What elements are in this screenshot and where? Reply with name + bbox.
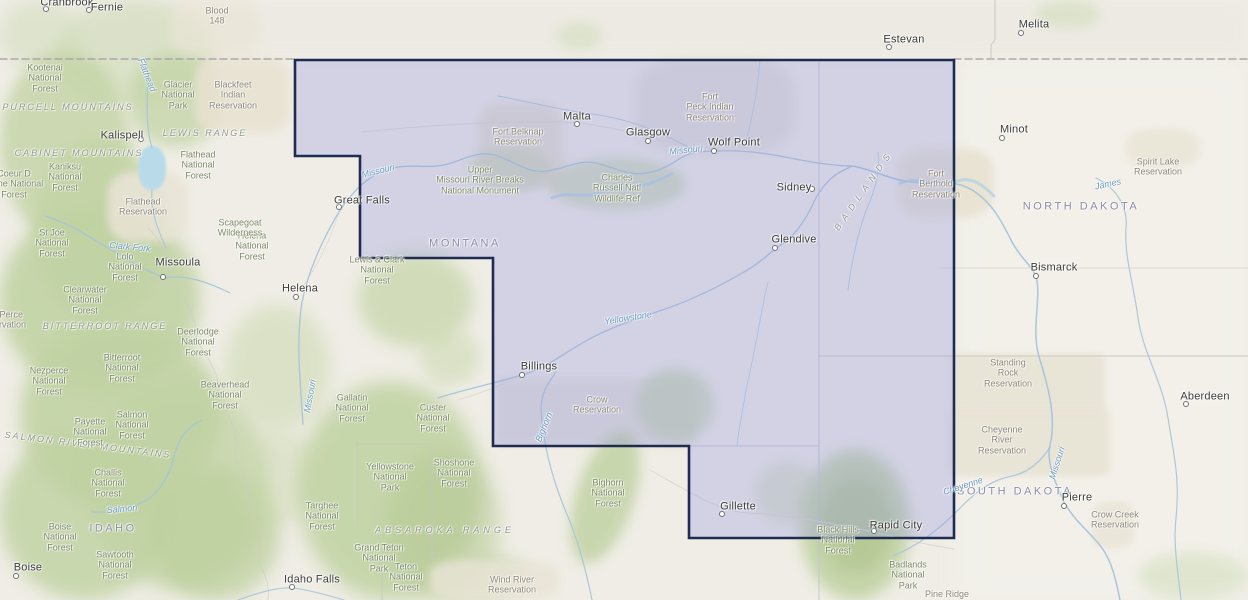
city-marker-kalispell <box>138 136 144 142</box>
range-label-lewis-range: LEWIS RANGE <box>163 128 248 138</box>
forest-label-scapegoat: Scapegoat Wilderness <box>218 218 263 239</box>
range-label-cabinet-mountains: CABINET MOUNTAINS <box>15 148 144 158</box>
forest-label-helena: Helena National Forest <box>235 230 268 261</box>
state-label-south-dakota: SOUTH DAKOTA <box>957 486 1073 499</box>
res-label-crow-creek: Crow Creek Reservation <box>1091 510 1139 531</box>
forest-label-grand-teton: Grand Teton National Park <box>354 542 403 573</box>
city-marker-gillette <box>719 511 725 517</box>
city-marker-glendive <box>772 245 778 251</box>
river-label-flathead: Flathead <box>136 57 159 93</box>
city-label-billings: Billings <box>521 361 557 374</box>
forest-label-st-joe: St Joe National Forest <box>35 227 68 258</box>
river-label-yellowstone: Yellowstone <box>603 309 652 327</box>
res-label-fort: Fort Berthold Reservation <box>912 168 960 199</box>
res-label-crow: Crow Reservation <box>573 395 621 416</box>
city-marker-cranbrook <box>43 6 49 12</box>
forest-label-flathead: Flathead National Forest <box>180 149 215 180</box>
res-label-blood: Blood 148 <box>205 6 228 27</box>
city-label-estevan: Estevan <box>883 34 924 47</box>
res-label-pine-ridge: Pine Ridge <box>925 589 969 599</box>
city-label-kalispell: Kalispell <box>101 130 144 143</box>
city-marker-helena <box>293 294 299 300</box>
city-marker-boise <box>13 573 19 579</box>
river-label-missouri: Missouri <box>669 143 703 157</box>
city-marker-great-falls <box>336 204 342 210</box>
forest-label-beaverhead: Beaverhead National Forest <box>201 379 250 410</box>
res-label-standing: Standing Rock Reservation <box>984 357 1032 388</box>
city-marker-malta <box>574 121 580 127</box>
city-label-gillette: Gillette <box>720 501 756 514</box>
city-marker-minot <box>999 135 1005 141</box>
forest-label-yellowstone: Yellowstone National Park <box>366 461 414 492</box>
res-label-cheyenne: Cheyenne River Reservation <box>978 424 1026 455</box>
forest-label-shoshone: Shoshone National Forest <box>434 457 475 488</box>
city-label-rapid-city: Rapid City <box>870 520 923 533</box>
city-label-helena: Helena <box>282 283 318 296</box>
city-label-glasgow: Glasgow <box>626 127 670 140</box>
forest-label-bighorn: Bighorn National Forest <box>591 477 624 508</box>
map-canvas[interactable]: PURCELL MOUNTAINSCABINET MOUNTAINSLEWIS … <box>0 0 1248 600</box>
river-label-cheyenne: Cheyenne <box>942 475 984 498</box>
city-label-great-falls: Great Falls <box>334 195 390 208</box>
range-label-salmon-river-mountains: SALMON RIVER MOUNTAINS <box>4 430 172 461</box>
forest-label-clearwater: Clearwater National Forest <box>63 284 107 315</box>
city-label-wolf-point: Wolf Point <box>708 137 760 150</box>
city-marker-melita <box>1018 30 1024 36</box>
forest-label-kaniksu: Kaniksu National Forest <box>48 161 81 192</box>
res-label-fort: Fort Peck Indian Reservation <box>686 91 734 122</box>
city-marker-bismarck <box>1033 273 1039 279</box>
forest-label-gallatin: Gallatin National Forest <box>335 392 368 423</box>
res-label-blackfeet: Blackfeet Indian Reservation <box>209 79 257 110</box>
river-label-salmon: Salmon <box>106 503 137 516</box>
forest-label-payette: Payette National Forest <box>73 416 106 447</box>
range-label-badlands: BADLANDS <box>832 148 896 233</box>
city-marker-wolf-point <box>711 148 717 154</box>
forest-label-teton: Teton National Forest <box>389 561 422 592</box>
city-marker-sidney <box>809 186 815 192</box>
map-labels-layer: PURCELL MOUNTAINSCABINET MOUNTAINSLEWIS … <box>0 0 1248 600</box>
city-marker-aberdeen <box>1183 401 1189 407</box>
city-label-minot: Minot <box>1000 124 1028 137</box>
forest-label-upper: Upper Missouri River Breaks National Mon… <box>436 164 524 195</box>
state-label-north-dakota: NORTH DAKOTA <box>1023 201 1139 214</box>
forest-label-nezperce: Nezperce National Forest <box>30 365 69 396</box>
river-label-bighorn: Bighorn <box>533 411 554 444</box>
city-label-malta: Malta <box>563 111 591 124</box>
river-label-missouri: Missouri <box>302 379 318 414</box>
range-label-purcell-mountains: PURCELL MOUNTAINS <box>2 102 133 112</box>
res-label-nez-perce: Nez Perce Reservation <box>0 310 26 331</box>
forest-label-bitterroot: Bitterroot National Forest <box>104 352 141 383</box>
river-label-missouri: Missouri <box>360 162 395 180</box>
city-marker-idaho-falls <box>289 584 295 590</box>
city-label-fernie: Fernie <box>91 2 123 15</box>
res-label-wind-river: Wind River Reservation <box>488 575 536 596</box>
res-label-fort-belknap: Fort Belknap Reservation <box>492 127 543 148</box>
forest-label-boise: Boise National Forest <box>43 521 76 552</box>
forest-label-charles: Charles Russell Natl Wildlife Ref <box>593 172 641 203</box>
city-label-glendive: Glendive <box>771 234 816 247</box>
range-label-bitterroot-range: BITTERROOT RANGE <box>43 321 168 331</box>
forest-label-coeur-d: Coeur D Alene National Forest <box>0 168 43 199</box>
forest-label-targhee: Targhee National Forest <box>305 500 338 531</box>
forest-label-challis: Challis National Forest <box>91 467 124 498</box>
city-label-aberdeen: Aberdeen <box>1180 391 1229 404</box>
state-label-montana: MONTANA <box>429 238 501 251</box>
river-label-james: James <box>1094 176 1122 192</box>
state-label-idaho: IDAHO <box>89 523 136 536</box>
city-label-missoula: Missoula <box>155 257 200 270</box>
res-label-flathead: Flathead Reservation <box>119 197 167 218</box>
forest-label-lewis-clark: Lewis & Clark National Forest <box>349 254 404 285</box>
city-label-idaho-falls: Idaho Falls <box>284 574 340 587</box>
city-marker-rapid-city <box>871 528 877 534</box>
city-marker-billings <box>519 372 525 378</box>
forest-label-black-hills: Black Hills National Forest <box>817 524 859 555</box>
forest-label-kootenai: Kootenai National Forest <box>27 62 63 93</box>
city-label-boise: Boise <box>14 562 43 575</box>
forest-label-lolo: Lolo National Forest <box>108 251 141 282</box>
forest-label-badlands: Badlands National Park <box>889 559 927 590</box>
city-marker-pierre <box>1061 503 1067 509</box>
city-label-bismarck: Bismarck <box>1031 262 1078 275</box>
forest-label-custer: Custer National Forest <box>416 402 449 433</box>
res-label-spirit-lake: Spirit Lake Reservation <box>1134 157 1182 178</box>
city-label-melita: Melita <box>1019 19 1050 32</box>
river-label-missouri: Missouri <box>1047 445 1067 480</box>
city-label-sidney: Sidney <box>777 182 812 195</box>
forest-label-deerlodge: Deerlodge National Forest <box>177 326 219 357</box>
river-label-clark-fork: Clark Fork <box>109 240 151 254</box>
city-label-cranbrook: Cranbrook <box>40 0 93 9</box>
city-marker-estevan <box>886 44 892 50</box>
city-marker-fernie <box>86 7 92 13</box>
forest-label-salmon: Salmon National Forest <box>115 409 148 440</box>
range-label-absaroka-range: ABSAROKA RANGE <box>375 525 515 535</box>
city-marker-glasgow <box>645 138 651 144</box>
city-marker-missoula <box>160 274 166 280</box>
forest-label-sawtooth: Sawtooth National Forest <box>96 549 134 580</box>
city-label-pierre: Pierre <box>1062 492 1093 505</box>
forest-label-glacier: Glacier National Park <box>161 79 194 110</box>
